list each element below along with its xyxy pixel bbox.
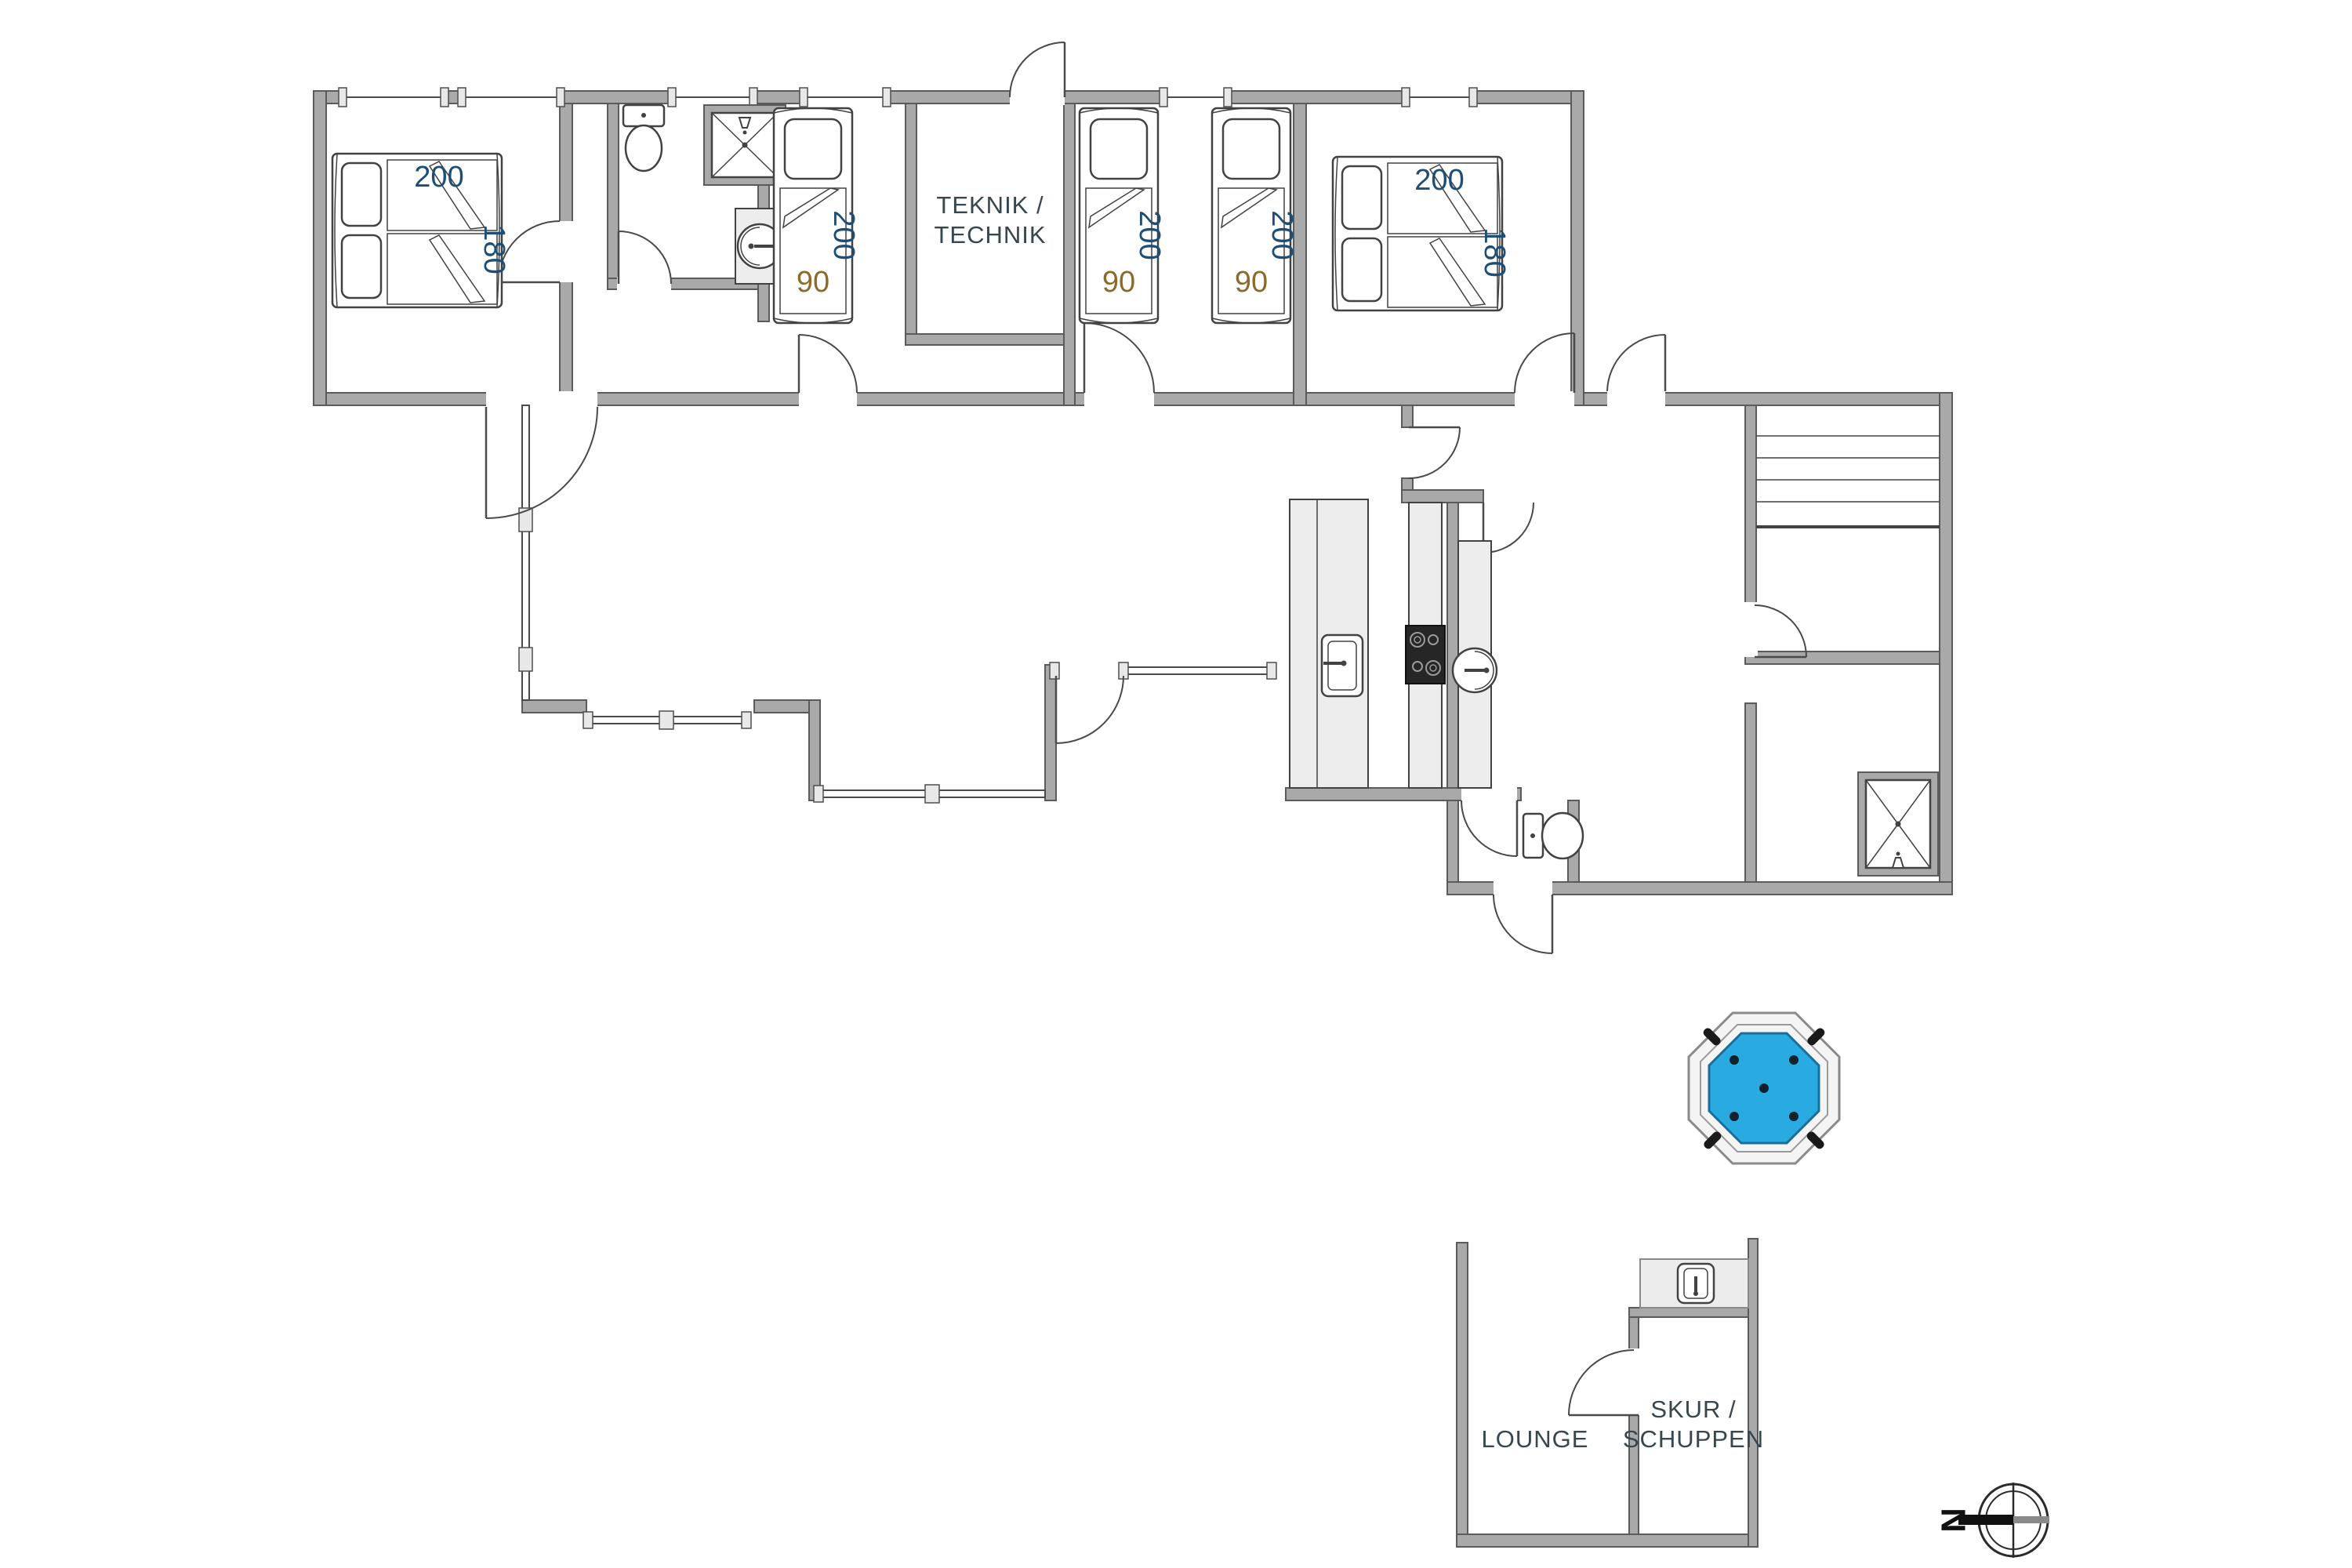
door-main-entrance xyxy=(1010,42,1065,97)
window xyxy=(1160,88,1232,107)
bed-length-label: 200 xyxy=(1265,210,1298,260)
shower-2-icon xyxy=(1858,772,1938,876)
bed-width-label: 90 xyxy=(1102,266,1135,299)
bed-double-right: 200 180 xyxy=(1333,157,1511,310)
bed-width-label: 90 xyxy=(797,266,829,299)
shed-label-2: SCHUPPEN xyxy=(1623,1425,1764,1453)
room-hallway xyxy=(1458,405,1745,876)
bed-twin-left: 90 200 xyxy=(1080,108,1166,323)
room-technik xyxy=(916,103,1064,334)
window-band-south-2 xyxy=(814,785,1045,803)
compass-north-label: N xyxy=(1935,1508,1973,1533)
compass-icon: N xyxy=(1935,1483,2050,1558)
kitchen-island xyxy=(1290,499,1368,788)
window xyxy=(1402,88,1477,107)
bed-twin-right: 90 200 xyxy=(1212,108,1298,323)
bed-length-label: 200 xyxy=(827,210,860,260)
bed-length-label: 200 xyxy=(414,161,463,194)
hall-washbasin-icon xyxy=(1453,541,1497,788)
door-living-to-hall xyxy=(1409,427,1460,478)
bed-double-left: 200 180 xyxy=(332,154,510,307)
floor-plan: 200 180 90 200 90 200 90 200 xyxy=(0,0,2352,1568)
window xyxy=(800,88,891,107)
hot-tub-icon xyxy=(1689,1013,1839,1163)
window xyxy=(339,88,448,107)
technik-label-1: TEKNIK / xyxy=(936,191,1044,219)
bed-length-label: 200 xyxy=(1414,164,1464,197)
technik-label-2: TECHNIK xyxy=(934,221,1046,249)
bed-single-1: 90 200 xyxy=(774,108,860,323)
toilet-icon xyxy=(623,105,664,171)
window xyxy=(458,88,564,107)
bed-width-label: 180 xyxy=(1478,227,1511,277)
toilet-2-icon xyxy=(1523,813,1583,858)
cooktop-icon xyxy=(1406,626,1445,684)
shed-label-1: SKUR / xyxy=(1650,1396,1736,1423)
door-north-terrace xyxy=(1607,335,1665,391)
shed-sink-icon xyxy=(1640,1259,1748,1308)
lounge-label: LOUNGE xyxy=(1482,1425,1589,1453)
bed-width-label: 90 xyxy=(1235,266,1268,299)
bed-length-label: 200 xyxy=(1133,210,1166,260)
door-south-exit xyxy=(1494,895,1552,953)
window xyxy=(668,88,757,107)
bed-width-label: 180 xyxy=(477,224,510,274)
room-lounge xyxy=(1468,1243,1629,1534)
